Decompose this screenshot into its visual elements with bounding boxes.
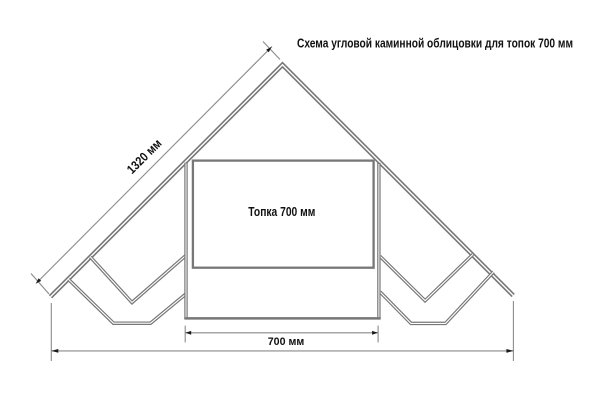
svg-text:Топка 700 мм: Топка 700 мм <box>248 205 315 219</box>
svg-text:1320 мм: 1320 мм <box>124 136 164 176</box>
svg-text:Схема угловой каминной облицов: Схема угловой каминной облицовки для топ… <box>297 36 573 51</box>
svg-text:700 мм: 700 мм <box>268 336 305 348</box>
